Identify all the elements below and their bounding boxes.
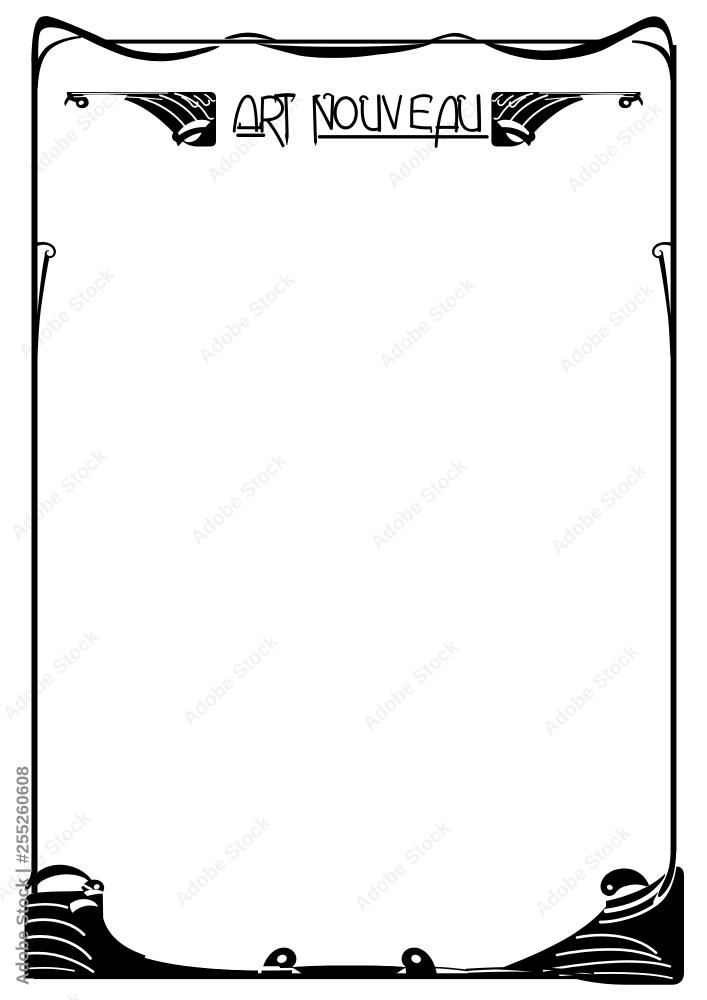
svg-text:Adobe Stock | #255260608: Adobe Stock | #255260608 — [13, 766, 33, 985]
